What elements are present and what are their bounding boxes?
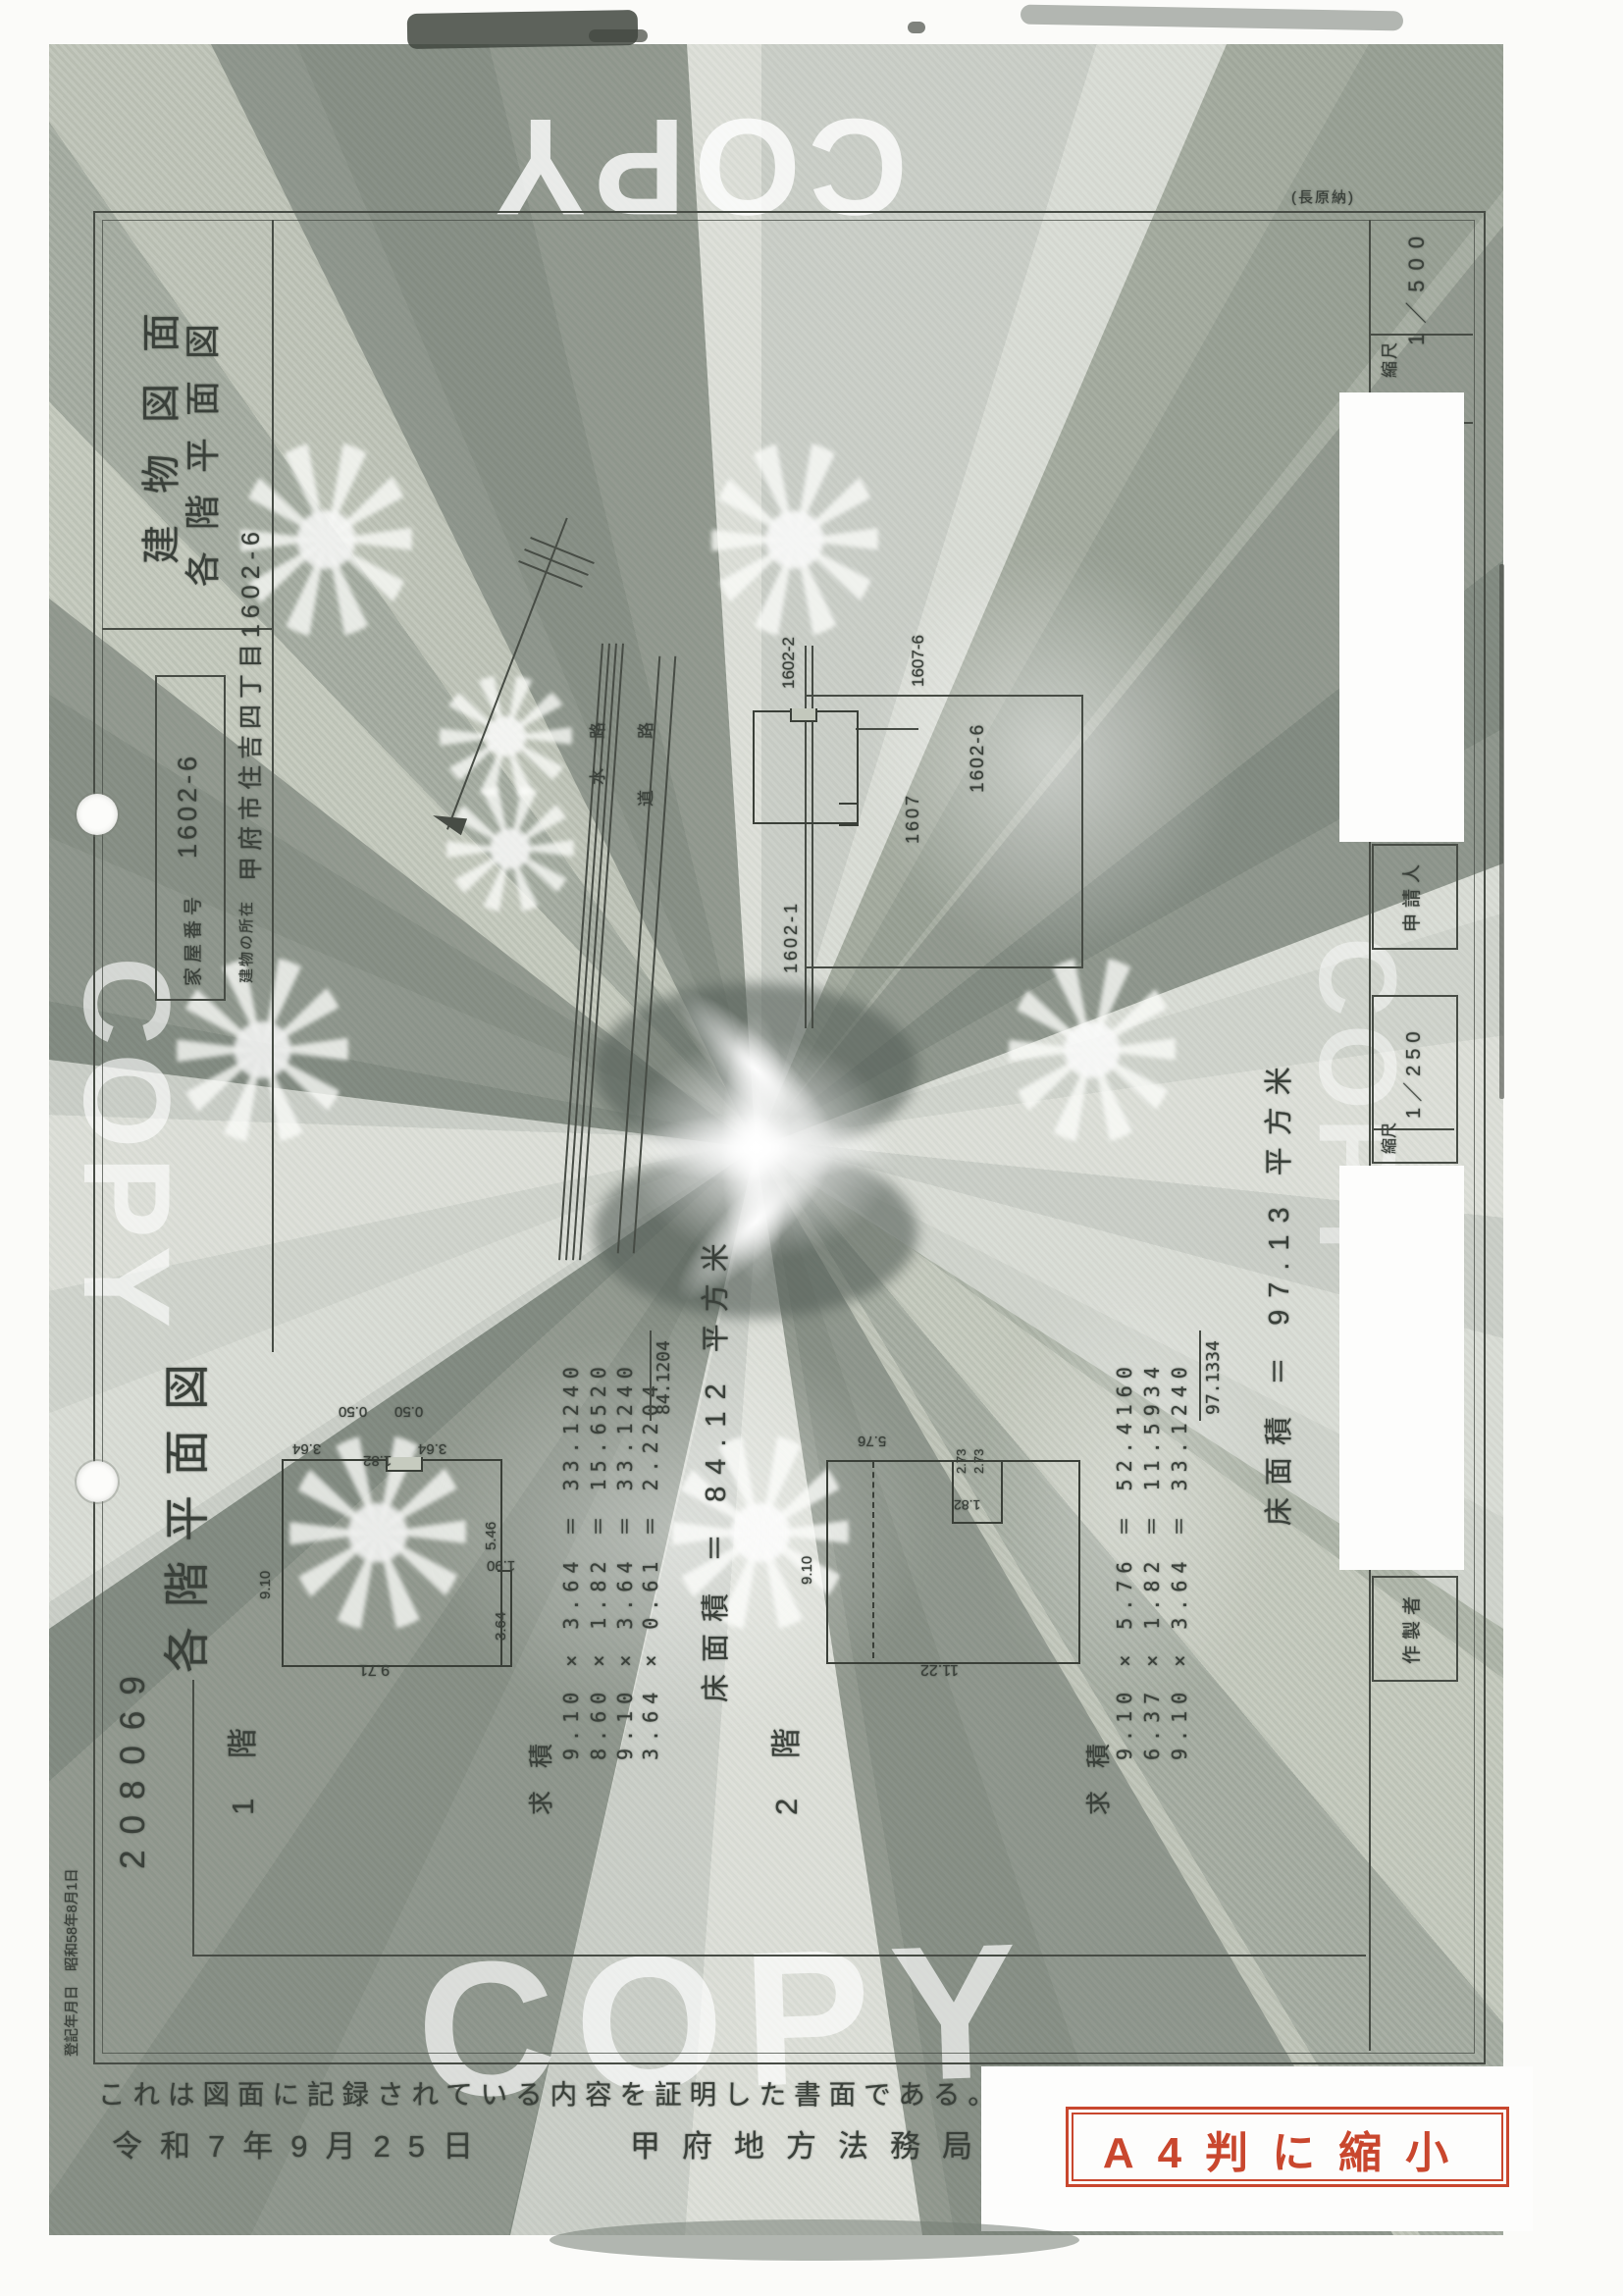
parcel-boundary [1081, 695, 1083, 968]
scan-smudge [589, 29, 648, 42]
certification-office: 甲府地方法務局 [630, 2121, 994, 2166]
floor2-label: 2 階 [761, 1668, 806, 1815]
scale1-value: 1／500 [1399, 213, 1431, 345]
scale2-value: 1／250 [1397, 1011, 1426, 1119]
scan-smudge [1021, 5, 1403, 31]
scale1-label: 縮尺 [1376, 331, 1400, 378]
location-label: 建物の所在 [236, 885, 256, 983]
sheet-title-line2: 各階平面図 [175, 273, 226, 587]
floor1-dim-top3: 3.64 [418, 1440, 446, 1457]
floor1-dim-offset1: 0.50 [339, 1403, 367, 1420]
punch-hole [77, 1461, 118, 1502]
floor2-dim-notch2: 2.73 [971, 1433, 986, 1474]
parcel-label-bottom: 1602-1 [781, 854, 802, 973]
floor1-calc-line: 9.10 × 3.64 ＝ 33.1240 [555, 1332, 584, 1760]
floor1-label: 1 階 [218, 1668, 262, 1815]
floor1-area-line: 床面積 ＝ 84.12 平方米 [693, 1251, 734, 1702]
road-label: 道路 [632, 708, 656, 807]
floor1-plan-outline [282, 1459, 502, 1667]
section-header: 各階平面図 [149, 1369, 217, 1673]
floor2-sum-line [1199, 1331, 1201, 1421]
parcel-label-right: 1607 [903, 759, 923, 844]
applicant-label: 申請人 [1397, 848, 1424, 932]
maker-label: 作製者 [1397, 1578, 1424, 1664]
floor1-sum-line [650, 1331, 652, 1421]
floor1-dim-right2: 1.90 [487, 1557, 515, 1574]
parcel-boundary [805, 646, 807, 1028]
floor1-dim-right3: 3.64 [493, 1593, 509, 1641]
parcel-label-right-top: 1607-6 [909, 597, 928, 687]
floor1-total: 84.1204 [654, 1331, 674, 1415]
certification-statement: これは図面に記録されている内容を証明した書面である。 [98, 2072, 1003, 2112]
parcel-boundary [811, 646, 813, 1028]
reduction-stamp-text: A4判に縮小 [1069, 2117, 1506, 2180]
floor2-dim-notch1: 2.73 [954, 1433, 969, 1474]
floor1-dim-offset2: 0.50 [394, 1403, 423, 1420]
inner-frame-bottom [192, 1955, 1366, 1957]
certification-date: 令和7年9月25日 [112, 2121, 491, 2166]
parcel-boundary [805, 695, 1081, 697]
inner-frame-left [192, 1680, 194, 1955]
scan-smudge [908, 22, 925, 33]
building-footprint-notch [790, 708, 817, 722]
scan-edge-mark [1499, 564, 1504, 1099]
house-number-label: 家屋番号 [179, 878, 205, 986]
registration-date-note: 登記年月日 昭和58年8月1日 [61, 1870, 81, 2057]
floor2-total: 97.1334 [1203, 1331, 1224, 1415]
scanned-registry-drawing-page: COPY COPY COPY COPY 建物図面 各階平面図 1602-6 家屋… [0, 0, 1623, 2296]
location-value: 甲府市住吉四丁目1602-6 [232, 430, 267, 881]
redaction-box [1339, 392, 1464, 842]
house-number-value: 1602-6 [173, 721, 203, 859]
floor2-dim-top: 5.76 [858, 1433, 886, 1449]
page-number: 208069 [114, 1653, 153, 1869]
floor2-calc-line: 9.10 × 5.76 ＝ 52.4160 [1109, 1332, 1137, 1760]
floor1-kyuseki-label: 求 積 [522, 1727, 557, 1815]
floor2-plan-dashed-partition [872, 1462, 874, 1658]
floor1-calc-line: 9.10 × 3.64 ＝ 33.1240 [609, 1332, 638, 1760]
title-strip-divider [272, 220, 274, 1352]
reduction-stamp: A4判に縮小 [1066, 2107, 1509, 2187]
parcel-boundary [805, 966, 1081, 968]
floor2-dim-notch-inner: 1.82 [954, 1497, 980, 1513]
parcel-label-main: 1602-6 [968, 695, 989, 793]
floor2-dim-left: 9.10 [799, 1524, 815, 1585]
floor1-dim-top1: 3.64 [292, 1440, 321, 1457]
floor1-dim-right1: 5.46 [483, 1503, 499, 1550]
punch-hole [77, 794, 118, 835]
redaction-box [1339, 1166, 1464, 1570]
floor1-dim-left: 9.10 [257, 1537, 274, 1599]
floor2-dim-bottom: 11.22 [920, 1660, 959, 1678]
waterway-label: 水路 [584, 706, 608, 785]
floor1-calc-line: 8.60 × 1.82 ＝ 15.6520 [583, 1332, 611, 1760]
parcel-leader-line [856, 728, 918, 730]
floor2-calc-line: 6.37 × 1.82 ＝ 11.5934 [1136, 1332, 1165, 1760]
floor1-dim-top2: 1.82 [363, 1452, 392, 1469]
building-footprint-step [839, 803, 859, 826]
floor1-dim-bottom: 9.71 [359, 1660, 390, 1678]
floor2-area-line: 床面積 ＝ 97.13 平方米 [1256, 1074, 1297, 1526]
scan-smudge [550, 2219, 1079, 2261]
floor2-calc-line: 9.10 × 3.64 ＝ 33.1240 [1164, 1332, 1192, 1760]
corner-note: (長原納) [1291, 186, 1355, 207]
scale2-label: 縮尺 [1376, 1107, 1399, 1154]
parcel-label-top: 1602-2 [779, 591, 799, 689]
